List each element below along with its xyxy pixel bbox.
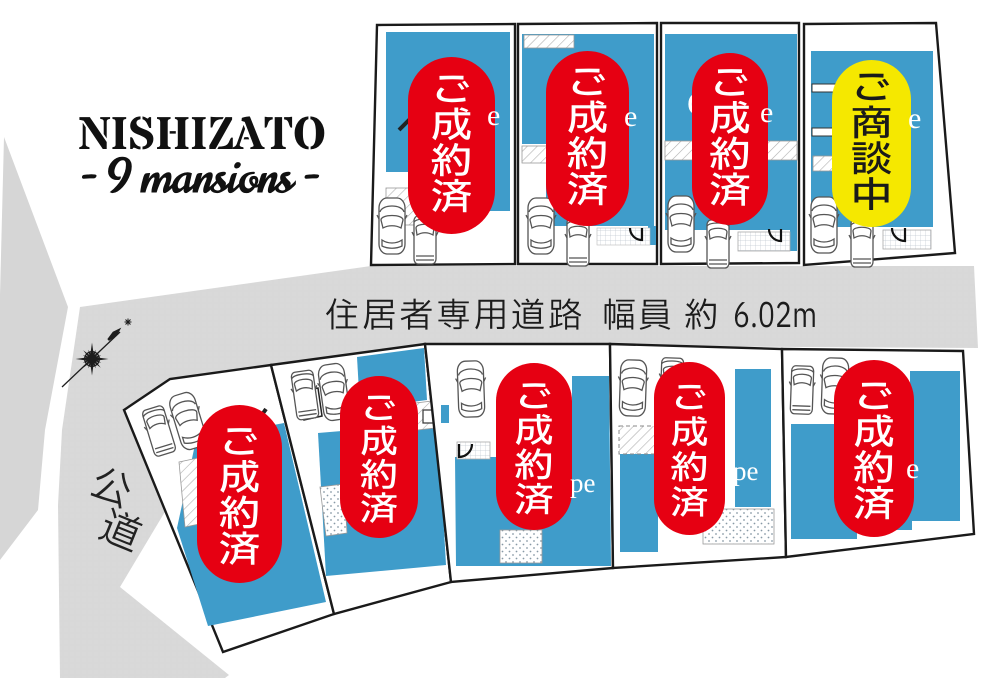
svg-text:e: e (906, 452, 919, 485)
svg-text:e: e (487, 99, 500, 132)
svg-text:pe: pe (733, 456, 759, 486)
svg-text:e: e (908, 102, 921, 135)
svg-text:e: e (624, 100, 637, 133)
svg-text:e: e (760, 96, 773, 129)
svg-text:pe: pe (570, 468, 596, 498)
